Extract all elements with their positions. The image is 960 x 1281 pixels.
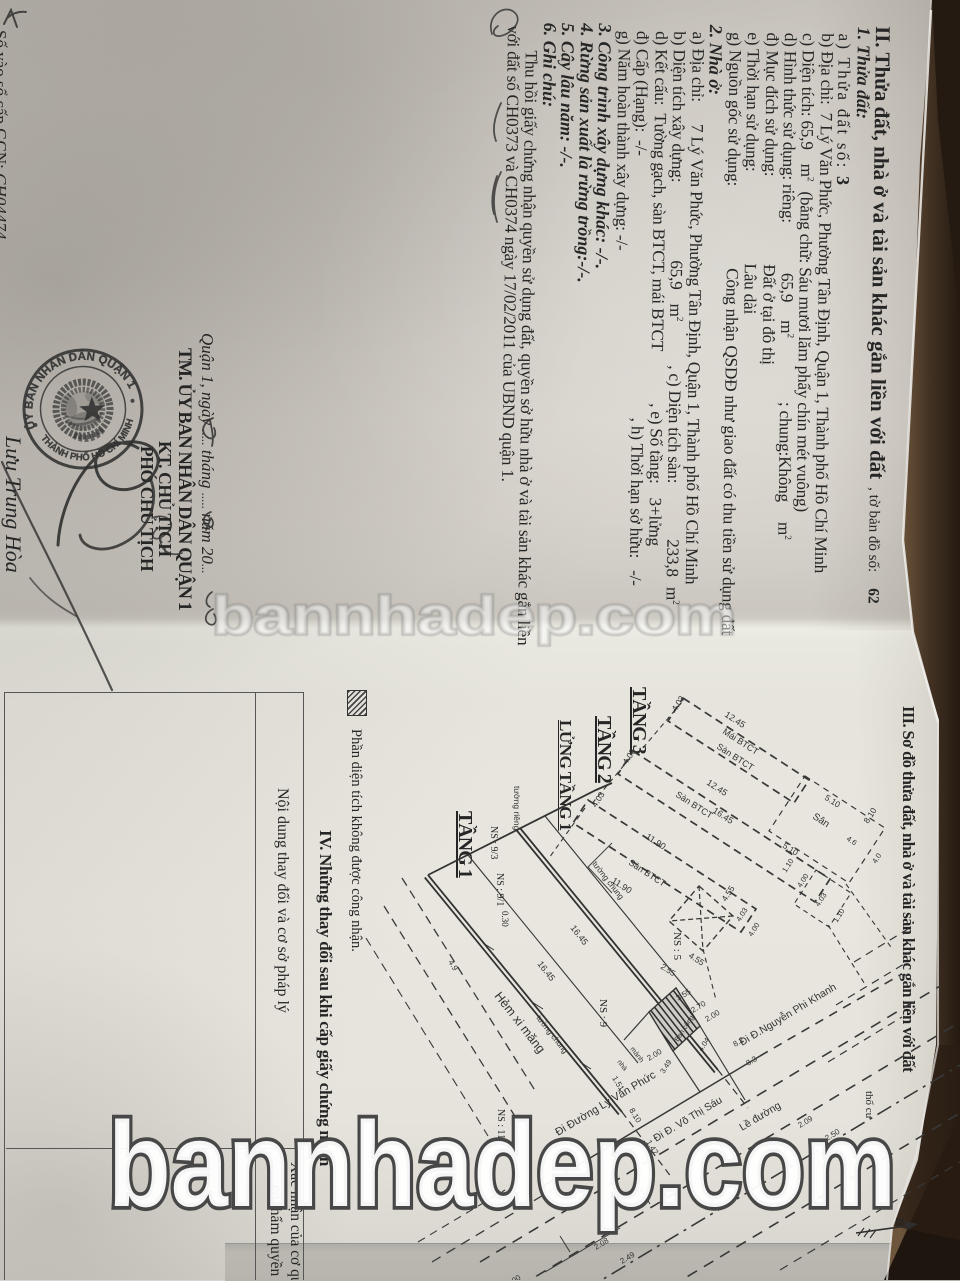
svg-text:bannhadep.com: bannhadep.com xyxy=(108,1096,896,1232)
svg-text:bannhadep.com: bannhadep.com xyxy=(212,586,736,646)
